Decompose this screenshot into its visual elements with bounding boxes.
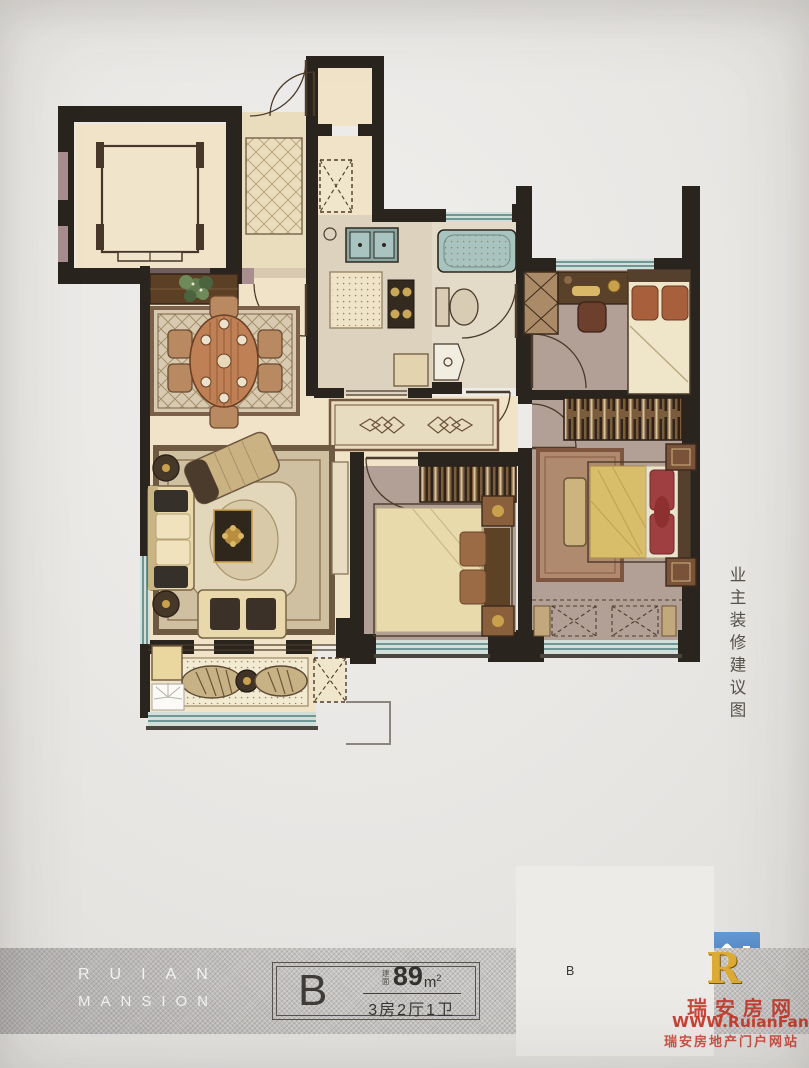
bathroom-window (446, 212, 512, 222)
kitchen-cabinet (394, 354, 428, 386)
nightstand (482, 606, 514, 636)
nightstand (482, 496, 514, 526)
key-plan-unit-label: B (566, 964, 574, 978)
watermark-site-slogan: 瑞安房地产门户网站 (664, 1031, 799, 1050)
brand-wordmark: RUIAN MANSION (78, 966, 228, 1010)
unit-info-card: B 建面 89 m2 3房2厅1卫 (272, 962, 480, 1020)
tv-console (332, 462, 348, 574)
loveseat (198, 590, 286, 638)
living-room (148, 430, 348, 638)
wardrobe-master (564, 398, 682, 440)
photographed-floorplan-page: RUIAN MANSION B 建面 89 m2 3房2厅1卫 业主装修建议图 … (0, 0, 809, 1068)
kitchen-stove (388, 280, 414, 328)
bed-bench (564, 478, 586, 546)
bed-bedroom2 (628, 270, 690, 394)
bathtub (438, 230, 516, 272)
sofa (148, 486, 194, 590)
balcony-window (146, 712, 318, 730)
watermark-site-url: WWW.RuianFang.Com (672, 1013, 809, 1031)
elevator (96, 142, 204, 261)
desk (558, 272, 628, 304)
balcony-parapet (346, 702, 390, 744)
side-annotation: 业主装修建议图 (724, 566, 748, 724)
top-store-floor (318, 68, 372, 126)
card-divider (363, 993, 461, 994)
nightstand (666, 558, 696, 586)
floor-drain (152, 683, 184, 710)
kitchen-sink (346, 228, 398, 262)
bed-master (588, 460, 690, 564)
dining-table (190, 315, 258, 407)
washbasin (434, 344, 464, 380)
area-unit: m2 (424, 974, 442, 990)
area-prefix: 建面 (382, 970, 391, 987)
desk-chair (578, 302, 606, 332)
brand-line1: RUIAN (78, 966, 228, 984)
master-bay-window (540, 640, 682, 658)
area-value: 89 (393, 963, 423, 990)
hallway-rug (330, 400, 498, 450)
nightstand (666, 444, 696, 470)
unit-letter: B (277, 969, 348, 1013)
lounge-chair (182, 666, 242, 698)
watermark-logo-letter: R (706, 944, 741, 993)
bedroom2-window (556, 259, 654, 270)
balcony-cabinet (152, 646, 182, 680)
lounge-chair (255, 666, 307, 696)
brand-line2: MANSION (78, 993, 228, 1010)
toilet (436, 288, 478, 326)
lobby-tile-pattern (246, 138, 302, 234)
bedroom3-window (374, 640, 490, 658)
wardrobe-bedroom2 (524, 272, 558, 334)
coffee-table (214, 510, 252, 562)
unit-layout-text: 3房2厅1卫 (368, 996, 455, 1020)
